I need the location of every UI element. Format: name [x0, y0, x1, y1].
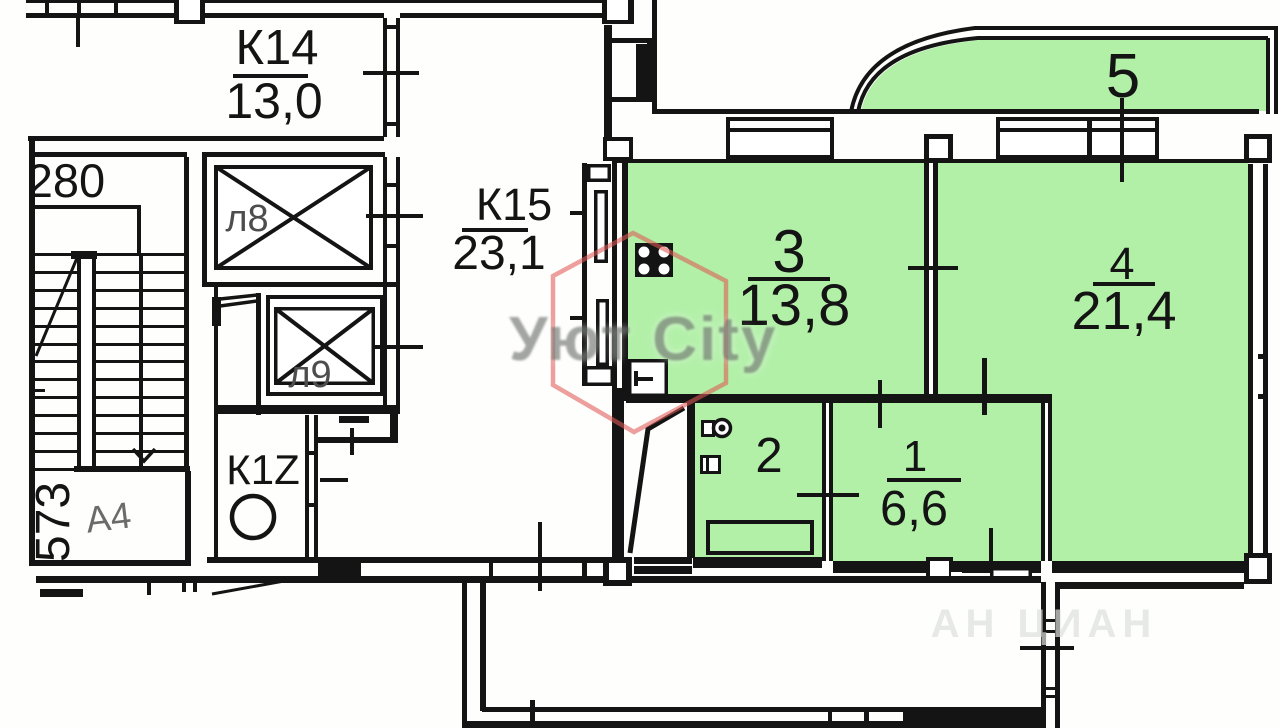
svg-text:л8: л8	[225, 198, 268, 240]
svg-text:21,4: 21,4	[1071, 281, 1176, 341]
svg-text:2: 2	[755, 429, 782, 483]
svg-text:К15: К15	[476, 179, 552, 230]
svg-text:13,0: 13,0	[225, 73, 322, 129]
svg-text:6,6: 6,6	[880, 482, 948, 536]
svg-text:АН ЦИАН: АН ЦИАН	[931, 602, 1158, 646]
svg-text:23,1: 23,1	[452, 227, 545, 280]
svg-text:К14: К14	[235, 21, 318, 75]
svg-text:1: 1	[903, 432, 927, 481]
svg-text:л9: л9	[288, 354, 331, 396]
svg-text:К1Z: К1Z	[226, 446, 299, 493]
svg-text:А4: А4	[84, 494, 134, 540]
svg-text:Уют City: Уют City	[509, 305, 777, 374]
svg-text:280: 280	[27, 154, 105, 207]
svg-text:573: 573	[27, 482, 80, 562]
